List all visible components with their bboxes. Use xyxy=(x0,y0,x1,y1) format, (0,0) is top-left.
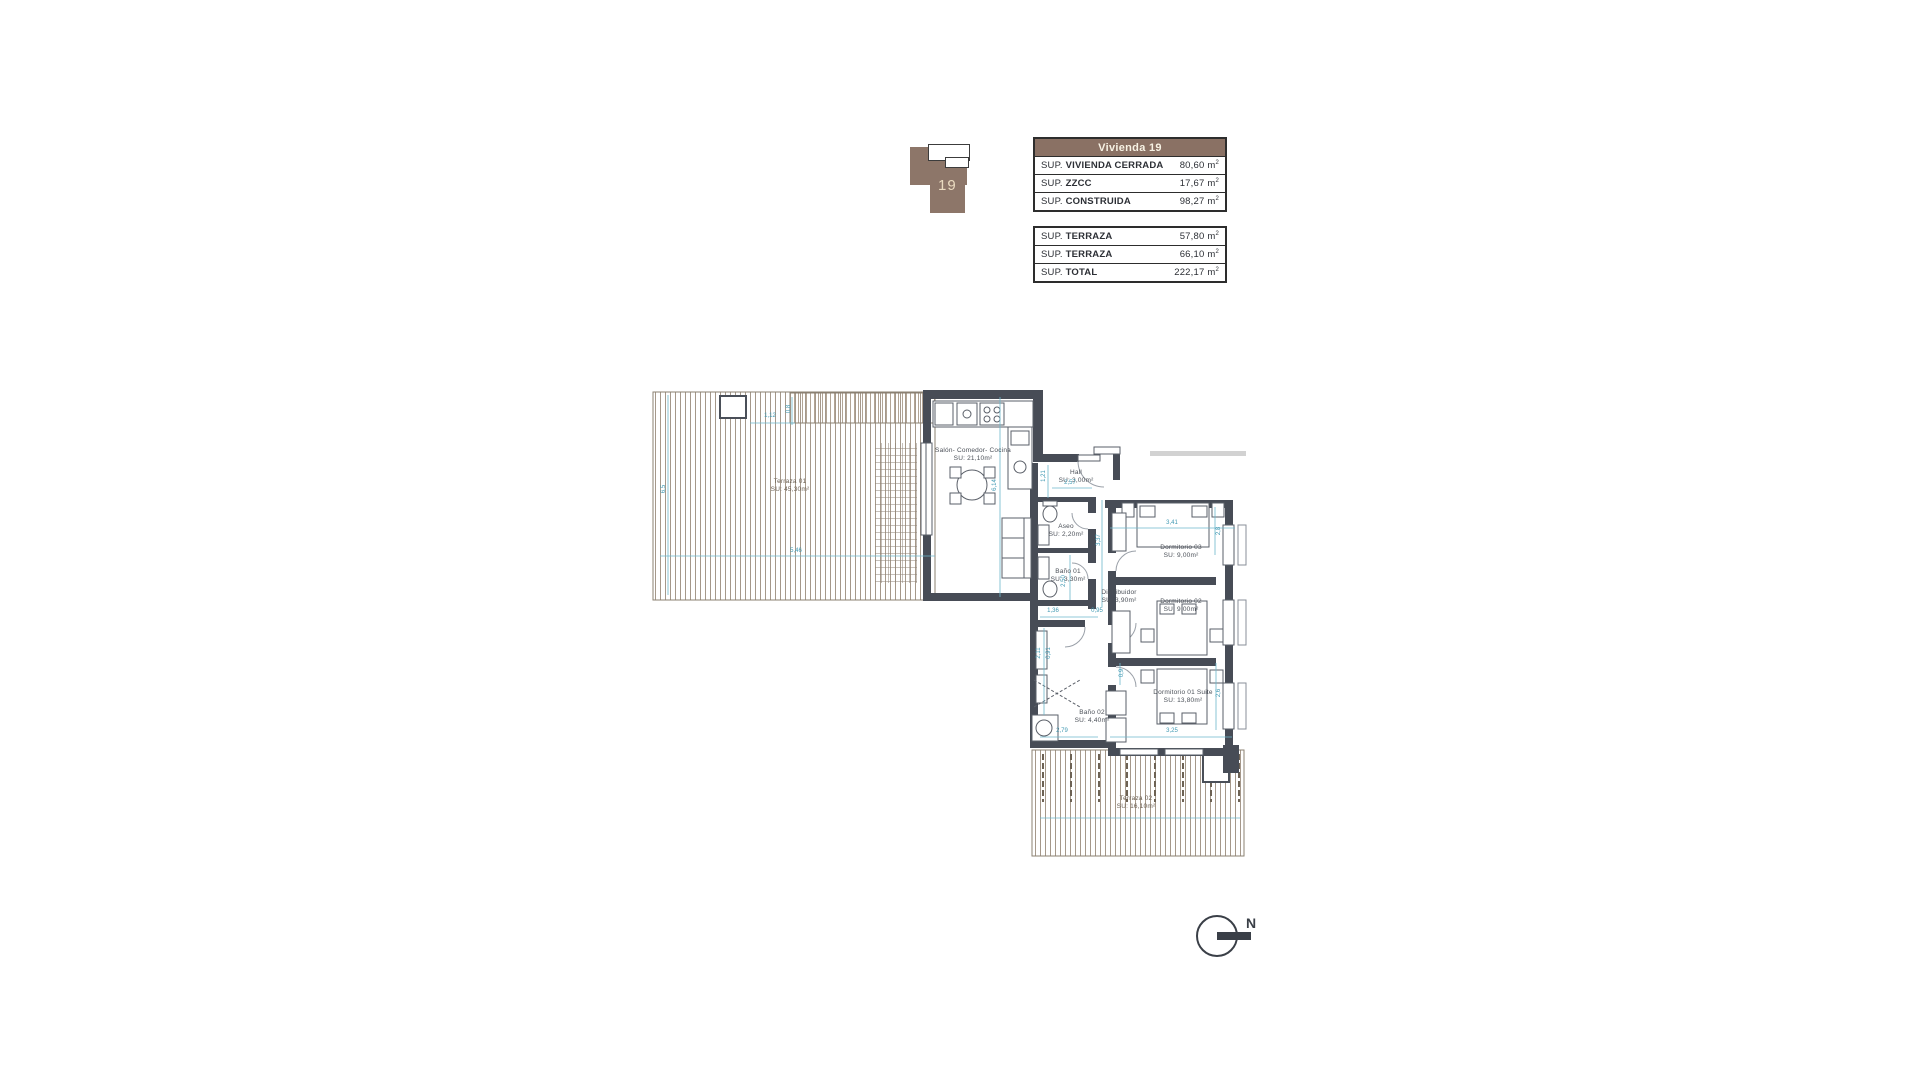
table-title: Vivienda 19 xyxy=(1035,139,1225,157)
shutter-frame xyxy=(1238,600,1246,645)
dimension-label: 2,11 xyxy=(1036,647,1042,658)
dimension-label: 2,57 xyxy=(1064,480,1076,486)
terrace-glass-door xyxy=(1120,749,1158,755)
shutter-frame xyxy=(1238,683,1246,729)
dimension-label: 3,25 xyxy=(1166,728,1178,734)
entry-door-leaf xyxy=(1078,455,1100,461)
dimension-label: 2,50 xyxy=(1061,575,1067,587)
north-compass: N xyxy=(1196,913,1266,973)
pergola-grid xyxy=(875,443,917,583)
compass-needle-icon xyxy=(1217,932,1251,940)
window xyxy=(1223,525,1234,565)
table-row: SUP. TOTAL 222,17 m2 xyxy=(1035,264,1225,281)
dimension-label: 3,37 xyxy=(1096,534,1102,546)
toilet xyxy=(1043,506,1057,522)
window xyxy=(1223,600,1234,645)
table-row: SUP. CONSTRUIDA 98,27 m2 xyxy=(1035,193,1225,210)
row-value: 98,27 m2 xyxy=(1180,196,1219,207)
planter-box xyxy=(720,396,746,418)
room-label: Baño 01SU: 3,30m² xyxy=(1051,568,1086,584)
dimension-label: 0,95 xyxy=(1091,608,1103,614)
dimension-label: 0,91 xyxy=(1046,647,1052,659)
table-row: SUP. TERRAZA 66,10 m2 xyxy=(1035,246,1225,264)
shutter-frame xyxy=(1238,525,1246,565)
row-label: SUP. TERRAZA xyxy=(1041,231,1112,242)
room-label: DistribuidorSU: 3,90m² xyxy=(1101,589,1136,605)
row-value: 57,80 m2 xyxy=(1180,231,1219,242)
room-label: Dormitorio 03SU: 9,00m² xyxy=(1160,544,1202,560)
dimension-label: 6,5 xyxy=(661,485,667,493)
dimension-label: 1,21 xyxy=(1041,470,1047,482)
window xyxy=(1223,683,1234,729)
room-label: Salón- Comedor- CocinaSU: 21,10m² xyxy=(935,447,1011,463)
door-gap xyxy=(1088,563,1096,579)
row-label: SUP. TOTAL xyxy=(1041,267,1097,278)
room-label: Baño 02SU: 4,40m² xyxy=(1075,709,1110,725)
floor-plan: Salón- Comedor- CocinaSU: 21,10m² HallSU… xyxy=(650,385,1260,875)
room-label: AseoSU: 2,20m² xyxy=(1049,523,1084,539)
table-row: SUP. VIVIENDA CERRADA 80,60 m2 xyxy=(1035,157,1225,175)
row-value: 66,10 m2 xyxy=(1180,249,1219,260)
key-plan-unit-number: 19 xyxy=(938,177,957,194)
hall-cabinet xyxy=(1094,447,1120,454)
row-label: SUP. VIVIENDA CERRADA xyxy=(1041,160,1163,171)
surface-summary-table: Vivienda 19 SUP. VIVIENDA CERRADA 80,60 … xyxy=(1033,137,1227,212)
table-row: SUP. ZZCC 17,67 m2 xyxy=(1035,175,1225,193)
wardrobe xyxy=(1112,611,1130,653)
dimension-label: 2,79 xyxy=(1056,728,1068,734)
floorplan-sheet: 19 Vivienda 19 SUP. VIVIENDA CERRADA 80,… xyxy=(0,0,1920,1080)
row-label: SUP. ZZCC xyxy=(1041,178,1092,189)
dimension-label: 3,41 xyxy=(1166,520,1178,526)
row-label: SUP. CONSTRUIDA xyxy=(1041,196,1131,207)
door-gap xyxy=(1108,553,1116,571)
key-plan-highlight-2 xyxy=(945,157,969,168)
key-plan-icon: 19 xyxy=(905,140,975,220)
row-value: 80,60 m2 xyxy=(1180,160,1219,171)
terrace-glass-door xyxy=(1165,749,1203,755)
wardrobe xyxy=(1112,513,1126,551)
dimension-label: 6,14 xyxy=(992,479,998,491)
row-label: SUP. TERRAZA xyxy=(1041,249,1112,260)
table-row: SUP. TERRAZA 57,80 m2 xyxy=(1035,228,1225,246)
dimension-label: 2,8 xyxy=(1216,527,1222,535)
cooktop xyxy=(980,403,1004,425)
door-gap xyxy=(1088,513,1096,529)
dimension-label: 1,12 xyxy=(764,413,776,419)
door-gap xyxy=(1108,667,1116,685)
neighbor-parapet xyxy=(1150,451,1246,456)
room-label: Dormitorio 02SU: 9,00m² xyxy=(1160,598,1202,614)
washbasin xyxy=(1038,557,1049,579)
dimension-label: 1,36 xyxy=(1047,608,1059,614)
room-label: Terraza 01SU: 45,30m² xyxy=(771,478,810,494)
row-value: 222,17 m2 xyxy=(1174,267,1219,278)
dimension-label: 0,8 xyxy=(786,405,792,413)
dimension-label: 5,46 xyxy=(790,548,802,554)
dimension-label: 0,9 xyxy=(1119,669,1125,677)
room-label: Dormitorio 01 SuiteSU: 13,80m² xyxy=(1153,689,1212,705)
terrace-summary-table: SUP. TERRAZA 57,80 m2 SUP. TERRAZA 66,10… xyxy=(1033,226,1227,283)
washbasin xyxy=(1038,525,1049,545)
compass-north-label: N xyxy=(1246,915,1256,931)
room-label: Terraza 02SU: 16,10m² xyxy=(1117,795,1156,811)
row-value: 17,67 m2 xyxy=(1180,178,1219,189)
dimension-label: 2,6 xyxy=(1216,689,1222,697)
